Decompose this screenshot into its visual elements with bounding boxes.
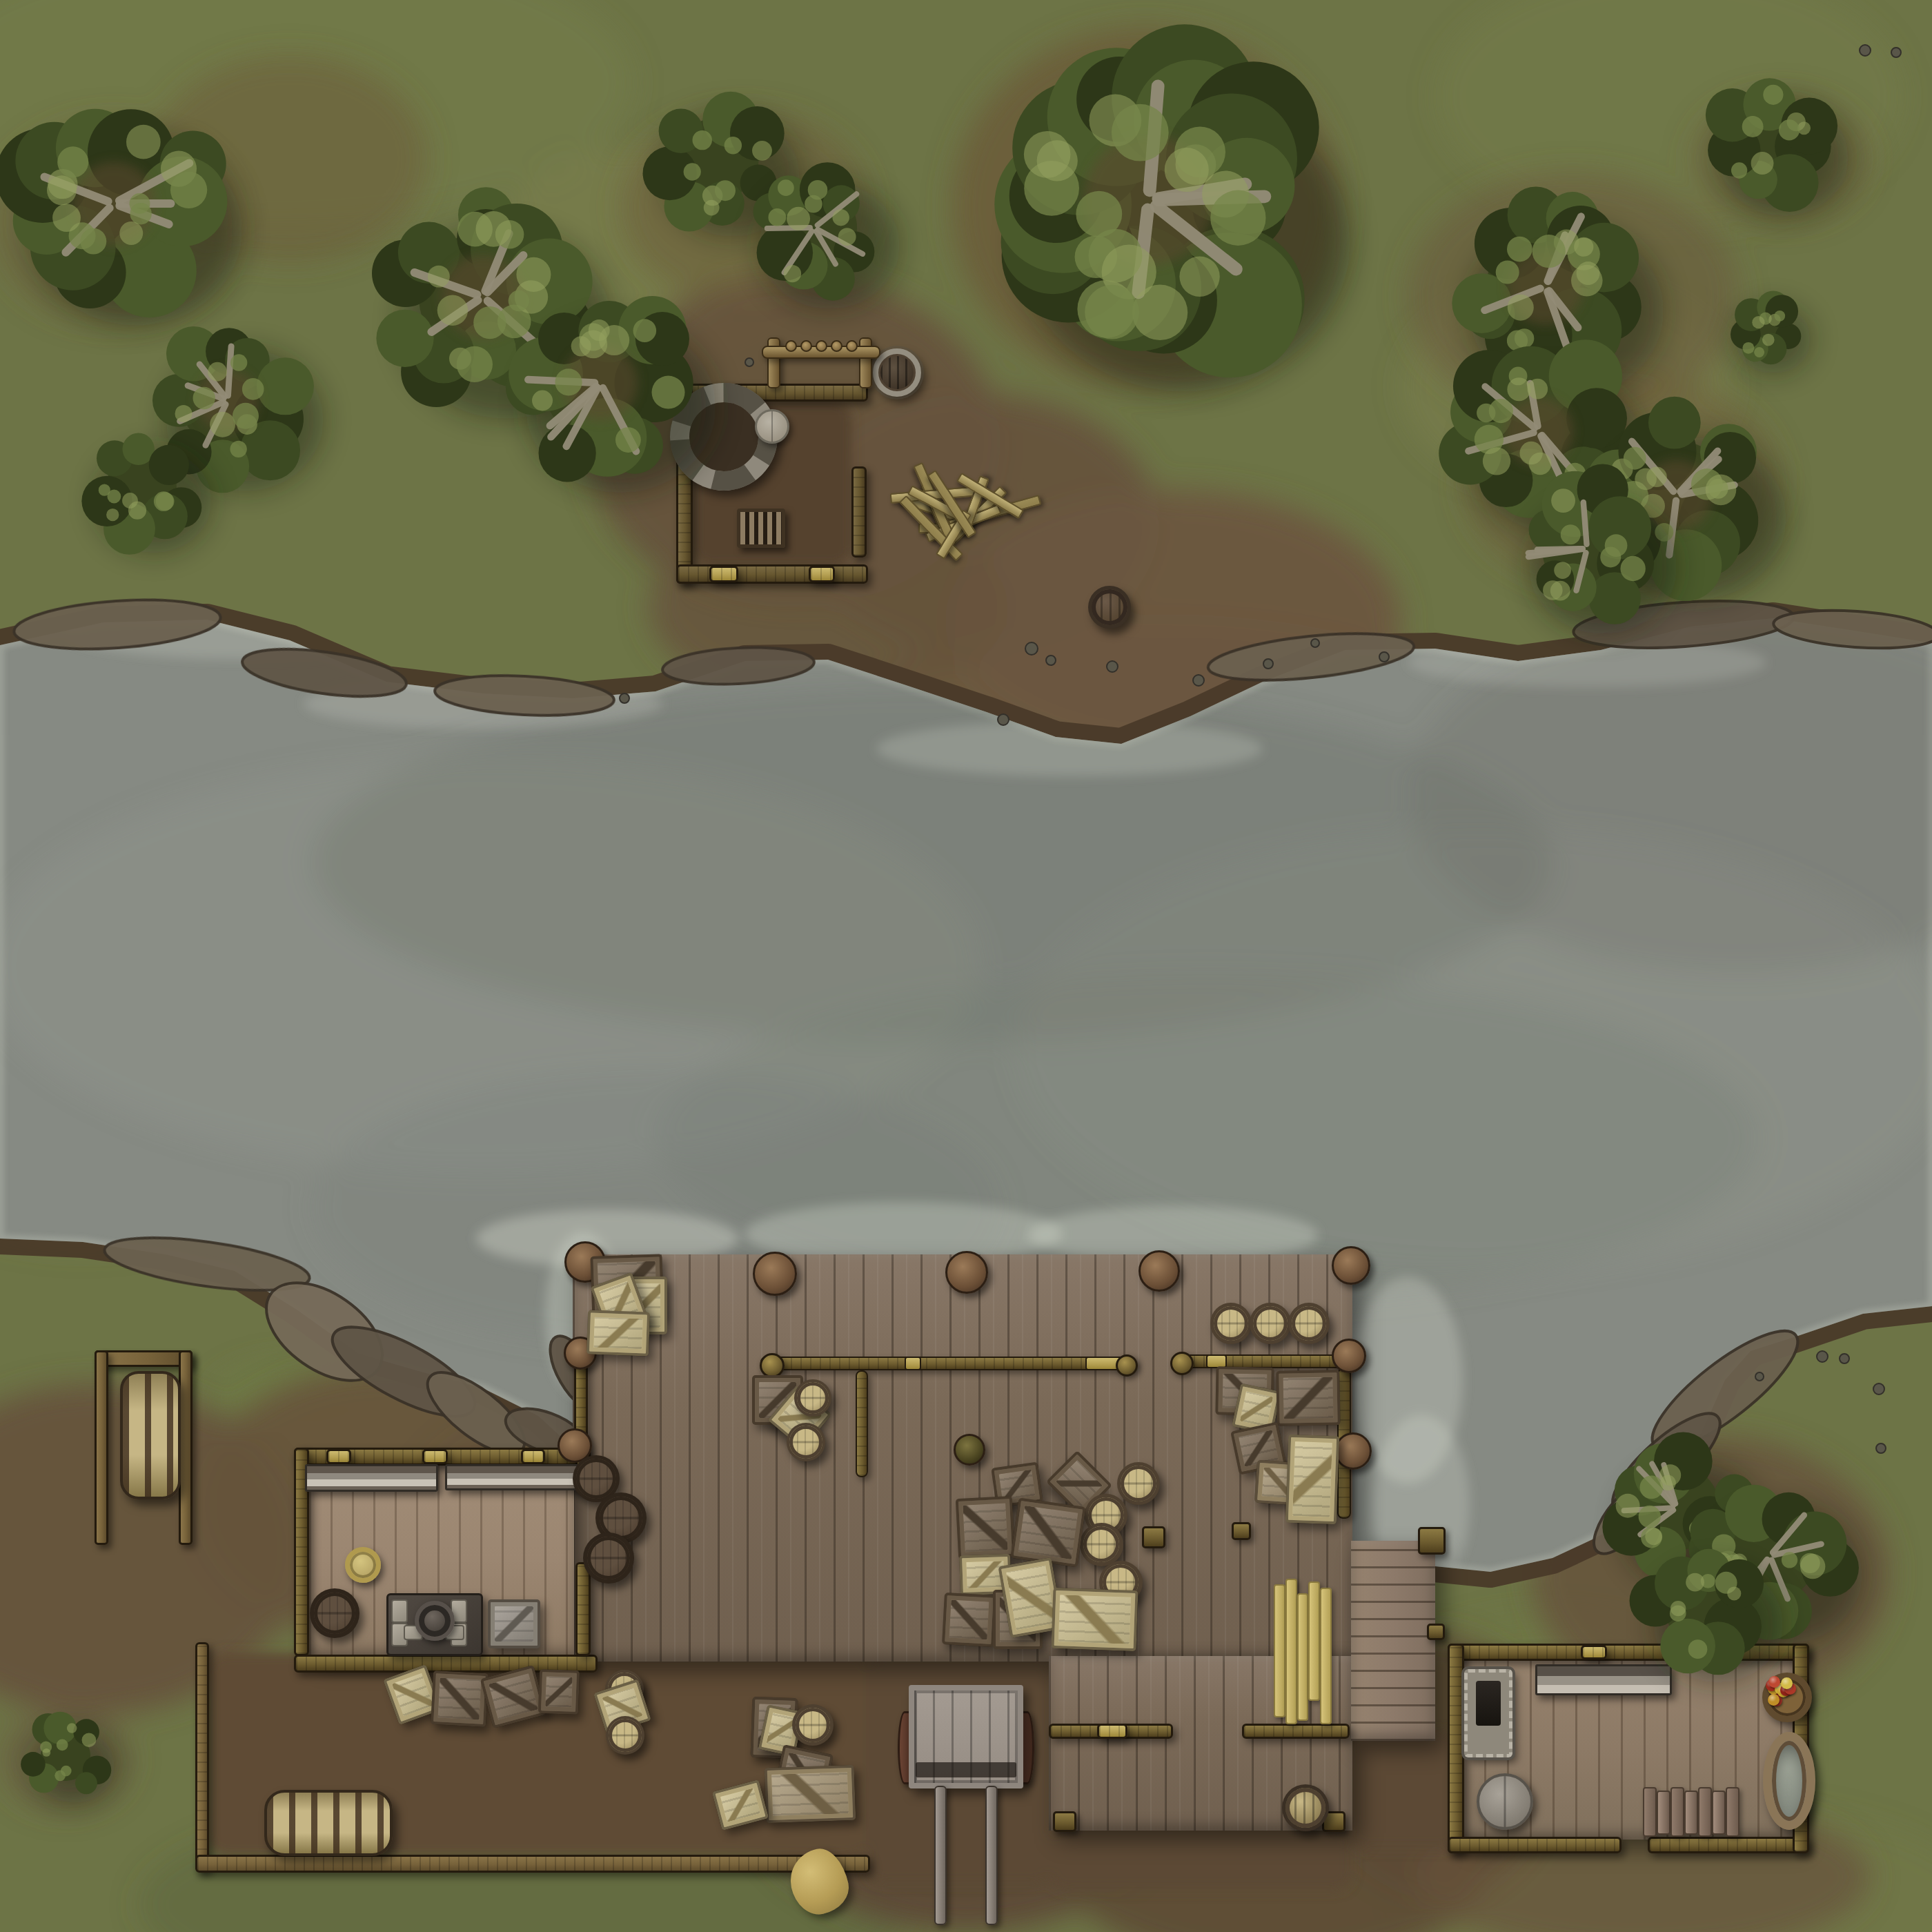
battle-map bbox=[0, 0, 1932, 1932]
foliage-highlight bbox=[230, 441, 246, 457]
foliage-highlight bbox=[684, 163, 701, 180]
foliage-highlight bbox=[555, 368, 582, 395]
foliage-clump bbox=[75, 1772, 97, 1794]
foliage-highlight bbox=[1507, 237, 1532, 262]
tree bbox=[1731, 290, 1811, 373]
foliage-highlight bbox=[787, 207, 810, 230]
foliage-highlight bbox=[154, 491, 174, 511]
foliage-highlight bbox=[1543, 580, 1563, 600]
foliage-highlight bbox=[1551, 489, 1575, 513]
foliage-highlight bbox=[1751, 152, 1774, 175]
tree bbox=[994, 24, 1350, 391]
foliage-highlight bbox=[1532, 235, 1566, 268]
foliage-highlight bbox=[1624, 447, 1646, 470]
foliage-highlight bbox=[724, 137, 742, 154]
foliage-highlight bbox=[516, 257, 551, 292]
foliage-highlight bbox=[1519, 442, 1542, 464]
foliage-clump bbox=[1648, 397, 1701, 449]
foliage-highlight bbox=[1554, 562, 1571, 579]
foliage-highlight bbox=[778, 179, 794, 196]
foliage-highlight bbox=[652, 376, 685, 409]
foliage-highlight bbox=[1179, 257, 1219, 297]
foliage-highlight bbox=[475, 211, 511, 247]
foliage-highlight bbox=[633, 319, 657, 342]
foliage-highlight bbox=[715, 180, 736, 201]
foliage-highlight bbox=[1112, 104, 1169, 161]
foliage-highlight bbox=[692, 130, 711, 150]
foliage-highlight bbox=[1800, 1554, 1825, 1579]
foliage-highlight bbox=[1483, 447, 1510, 475]
foliage-highlight bbox=[67, 1723, 77, 1733]
foliage-clump bbox=[539, 424, 596, 482]
foliage-highlight bbox=[1574, 237, 1593, 257]
foliage-highlight bbox=[1752, 316, 1764, 328]
foliage-highlight bbox=[1762, 334, 1775, 346]
tree-branch bbox=[1584, 502, 1587, 544]
foliage-highlight bbox=[47, 175, 77, 205]
foliage-highlight bbox=[1645, 1528, 1662, 1545]
foliage-highlight bbox=[82, 1733, 97, 1747]
foliage-clump bbox=[21, 1752, 46, 1777]
foliage-highlight bbox=[106, 509, 119, 521]
foliage-highlight bbox=[1600, 546, 1621, 567]
foliage-highlight bbox=[457, 346, 493, 382]
foliage-clump bbox=[1660, 1619, 1715, 1674]
foliage-highlight bbox=[1639, 1476, 1663, 1499]
foliage-highlight bbox=[1779, 119, 1800, 140]
tree bbox=[753, 162, 900, 309]
foliage-highlight bbox=[1706, 475, 1737, 506]
foliage-highlight bbox=[1774, 310, 1785, 322]
trees-layer bbox=[0, 0, 1932, 1932]
foliage-highlight bbox=[52, 204, 81, 232]
tree bbox=[1706, 78, 1849, 216]
foliage-highlight bbox=[130, 203, 151, 224]
foliage-highlight bbox=[752, 141, 772, 161]
foliage-highlight bbox=[193, 387, 215, 409]
foliage-highlight bbox=[57, 1739, 68, 1751]
foliage-highlight bbox=[1782, 1552, 1797, 1568]
tree bbox=[21, 1712, 115, 1804]
foliage-highlight bbox=[473, 306, 506, 339]
foliage-highlight bbox=[1742, 116, 1764, 137]
foliage-highlight bbox=[1763, 85, 1783, 105]
tree-branch bbox=[1537, 549, 1583, 549]
foliage-clump bbox=[376, 310, 433, 367]
foliage-highlight bbox=[615, 427, 641, 453]
foliage-highlight bbox=[1727, 1586, 1741, 1600]
foliage-highlight bbox=[1688, 1639, 1708, 1659]
foliage-highlight bbox=[833, 209, 849, 226]
foliage-highlight bbox=[42, 1748, 50, 1757]
foliage-highlight bbox=[126, 125, 161, 159]
foliage-highlight bbox=[210, 412, 235, 437]
foliage-highlight bbox=[838, 228, 856, 246]
foliage-highlight bbox=[242, 378, 264, 400]
foliage-highlight bbox=[1639, 1506, 1661, 1528]
foliage-highlight bbox=[107, 490, 121, 504]
foliage-highlight bbox=[784, 265, 801, 282]
foliage-highlight bbox=[1635, 469, 1657, 491]
foliage-highlight bbox=[55, 1770, 66, 1781]
foliage-highlight bbox=[768, 208, 786, 226]
foliage-highlight bbox=[80, 228, 106, 255]
tree bbox=[0, 109, 242, 326]
foliage-highlight bbox=[1496, 261, 1519, 284]
foliage-highlight bbox=[1024, 131, 1071, 178]
foliage-highlight bbox=[1616, 1494, 1640, 1518]
foliage-highlight bbox=[233, 403, 259, 429]
foliage-highlight bbox=[57, 146, 88, 177]
foliage-highlight bbox=[1507, 377, 1530, 401]
foliage-highlight bbox=[1085, 285, 1139, 339]
foliage-highlight bbox=[428, 266, 450, 288]
foliage-highlight bbox=[1754, 347, 1764, 357]
foliage-highlight bbox=[1489, 399, 1513, 423]
foliage-highlight bbox=[1508, 295, 1534, 321]
foliage-clump bbox=[257, 357, 314, 415]
foliage-highlight bbox=[808, 180, 828, 200]
foliage-highlight bbox=[1210, 190, 1265, 246]
foliage-highlight bbox=[170, 172, 207, 208]
foliage-highlight bbox=[437, 295, 468, 326]
foliage-highlight bbox=[532, 391, 553, 411]
foliage-highlight bbox=[1571, 265, 1603, 297]
tree-branch bbox=[228, 346, 231, 395]
foliage-highlight bbox=[230, 354, 247, 371]
foliage-highlight bbox=[1561, 524, 1581, 544]
foliage-highlight bbox=[1660, 1475, 1676, 1491]
foliage-highlight bbox=[122, 493, 138, 509]
foliage-clump bbox=[1566, 388, 1627, 448]
foliage-highlight bbox=[1076, 191, 1122, 237]
foliage-highlight bbox=[599, 325, 629, 355]
foliage-highlight bbox=[1165, 148, 1209, 192]
foliage-highlight bbox=[119, 221, 143, 245]
foliage-highlight bbox=[1620, 556, 1645, 581]
foliage-highlight bbox=[208, 362, 227, 382]
foliage-highlight bbox=[1731, 162, 1747, 178]
foliage-highlight bbox=[175, 405, 193, 422]
foliage-highlight bbox=[1686, 1573, 1704, 1592]
foliage-highlight bbox=[1670, 1601, 1686, 1616]
foliage-highlight bbox=[1742, 342, 1754, 354]
foliage-highlight bbox=[509, 290, 529, 311]
foliage-clump bbox=[149, 445, 189, 485]
